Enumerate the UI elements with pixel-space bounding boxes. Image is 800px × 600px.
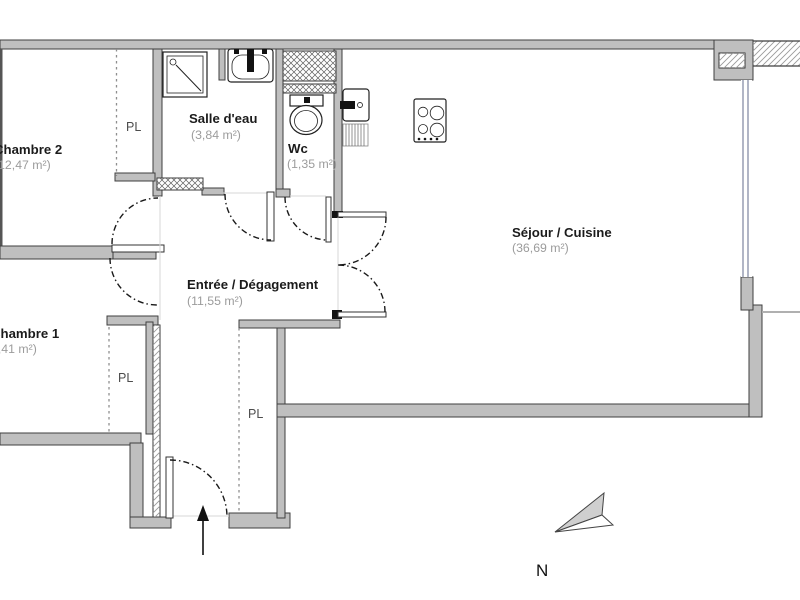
wall-sejour-bottom: [277, 404, 762, 417]
wall-salledeau-south: [202, 188, 224, 195]
entrance-arrow: [197, 505, 209, 555]
door-leaf-sejour-top: [338, 212, 386, 217]
label-chambre1: Chambre 1: [0, 326, 59, 341]
duct-strip-hatch-fill: [283, 84, 336, 93]
door-arc-salledeau: [225, 194, 271, 240]
area-wc: (1,35 m²): [287, 157, 337, 171]
compass-north-label: N: [536, 561, 548, 580]
wall-sejour-east: [749, 305, 762, 417]
floor-plan-drawing: N Chambre 2 (12,47 m²) PL Salle d'eau (3…: [0, 0, 800, 600]
duct-shaft-hatch-fill: [283, 51, 336, 81]
wall-chambre1-south: [0, 433, 141, 445]
wall-entry-west: [130, 443, 143, 528]
salledeau-wall-hatch-fill: [157, 178, 203, 190]
door-arc-wc: [285, 197, 328, 240]
floor-plan: N Chambre 2 (12,47 m²) PL Salle d'eau (3…: [0, 0, 800, 600]
door-arc-sejour-top: [338, 217, 386, 265]
label-chambre2: Chambre 2: [0, 142, 62, 157]
door-leaf-entrance: [166, 457, 173, 518]
area-salledeau: (3,84 m²): [191, 128, 241, 142]
washbasin-icon: [228, 49, 273, 82]
wall-salledeau-wc: [276, 49, 283, 197]
wall-entry-bottom-left: [130, 517, 171, 528]
wall-corridor-south: [239, 320, 340, 328]
door-arc-sejour-bottom: [338, 265, 385, 312]
walls: [0, 40, 800, 528]
door-threshold-chambre1: [112, 245, 164, 252]
corner-wall-hatch-fill: [719, 53, 745, 68]
door-arc-chambre2: [112, 198, 158, 244]
wall-top: [0, 40, 753, 49]
door-leaf-sejour-bottom: [338, 312, 386, 317]
compass: N: [536, 493, 613, 580]
door-leaf-wc: [326, 197, 331, 242]
door-arc-entrance: [170, 460, 227, 517]
wall-wc-south-stub: [276, 189, 290, 197]
label-wc: Wc: [288, 141, 308, 156]
wall-chambre1-east: [146, 322, 153, 434]
wall-window-sill-bottom: [741, 277, 753, 310]
floor-change-lines: [160, 193, 338, 516]
label-salledeau: Salle d'eau: [189, 111, 257, 126]
label-sejour-cuisine: Séjour / Cuisine: [512, 225, 612, 240]
wall-chambre1-chambre2: [0, 246, 113, 259]
label-pl-chambre2: PL: [126, 120, 141, 134]
toilet-icon: [290, 95, 323, 135]
area-sejour-cuisine: (36,69 m²): [512, 241, 569, 255]
kitchen-sink-icon: [340, 89, 369, 146]
wall-chambre1-chambre2-ext: [113, 252, 156, 259]
wall-pl-chambre2-bottom: [115, 173, 155, 181]
label-entree: Entrée / Dégagement: [187, 277, 319, 292]
room-labels: Chambre 2 (12,47 m²) PL Salle d'eau (3,8…: [0, 111, 612, 421]
window-east: [741, 80, 752, 277]
label-pl-chambre1: PL: [118, 371, 133, 385]
chambre1-wall-hatch-fill: [153, 325, 160, 517]
wall-shower-divider: [219, 49, 225, 80]
door-arc-chambre1: [110, 258, 157, 305]
wall-corridor-east: [277, 320, 285, 518]
area-chambre1: (11,41 m²): [0, 342, 37, 356]
party-wall-hatch: [753, 41, 800, 66]
shower-icon: [163, 52, 207, 97]
cooktop-icon: [414, 99, 446, 142]
area-entree: (11,55 m²): [187, 294, 243, 308]
area-chambre2: (12,47 m²): [0, 158, 51, 172]
label-pl-entree: PL: [248, 407, 263, 421]
door-leaf-salledeau: [267, 192, 274, 241]
